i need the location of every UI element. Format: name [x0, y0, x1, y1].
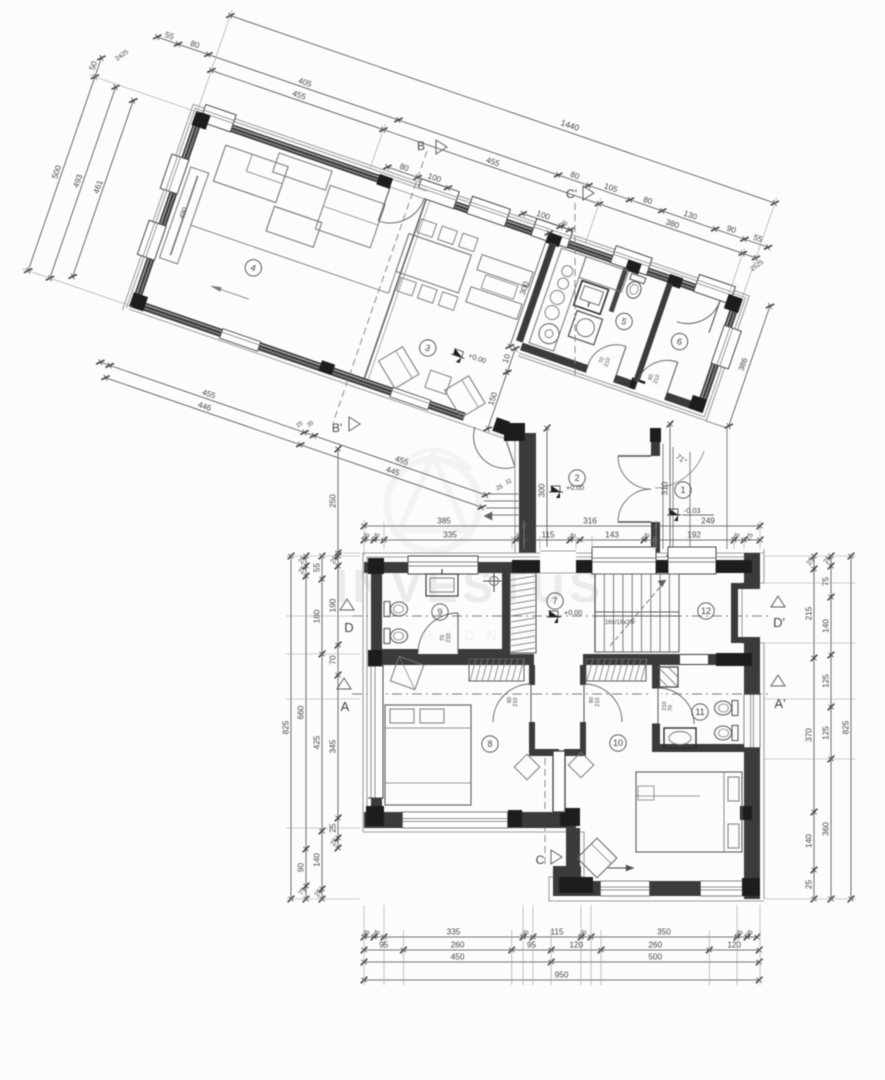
svg-text:90: 90	[297, 863, 306, 873]
svg-text:249: 249	[701, 517, 715, 526]
svg-text:G R A D N J A: G R A D N J A	[400, 627, 540, 643]
svg-text:70: 70	[668, 705, 674, 711]
svg-text:125: 125	[822, 674, 831, 688]
svg-text:B: B	[417, 139, 425, 153]
svg-text:345: 345	[329, 739, 338, 753]
svg-text:950: 950	[555, 971, 569, 980]
svg-text:A': A'	[774, 696, 785, 711]
svg-text:D: D	[344, 620, 353, 635]
svg-text:12: 12	[701, 606, 711, 616]
svg-text:16x/18x30/: 16x/18x30/	[605, 619, 636, 626]
svg-text:825: 825	[282, 720, 291, 734]
svg-text:360: 360	[822, 822, 831, 836]
svg-text:660: 660	[297, 705, 306, 719]
svg-text:125: 125	[822, 726, 831, 740]
svg-text:190: 190	[329, 598, 338, 612]
svg-text:1: 1	[680, 485, 685, 495]
svg-text:140: 140	[805, 834, 814, 848]
svg-text:370: 370	[805, 728, 814, 742]
svg-text:350: 350	[657, 928, 671, 937]
svg-text:10: 10	[613, 738, 623, 748]
svg-text:-0.03: -0.03	[684, 506, 700, 515]
svg-text:A: A	[341, 699, 350, 714]
svg-text:192: 192	[687, 531, 701, 540]
svg-text:9: 9	[437, 607, 442, 617]
svg-text:210: 210	[513, 697, 519, 706]
svg-text:+0.00: +0.00	[564, 608, 582, 617]
svg-text:115: 115	[541, 531, 554, 540]
svg-text:300: 300	[538, 483, 547, 497]
svg-text:120: 120	[727, 941, 741, 950]
svg-text:316: 316	[583, 517, 597, 526]
svg-text:C': C'	[566, 187, 577, 201]
svg-text:C: C	[536, 853, 545, 867]
svg-text:385: 385	[437, 517, 451, 526]
svg-text:55: 55	[313, 563, 322, 573]
svg-text:D': D'	[773, 615, 785, 630]
svg-text:120: 120	[569, 941, 583, 950]
svg-text:825: 825	[842, 720, 851, 734]
svg-text:335: 335	[443, 531, 457, 540]
svg-text:450: 450	[451, 953, 465, 962]
svg-text:210: 210	[595, 697, 601, 706]
svg-text:11: 11	[695, 707, 704, 717]
svg-text:310: 310	[661, 481, 670, 495]
svg-text:250: 250	[329, 494, 338, 508]
svg-text:115: 115	[550, 928, 563, 937]
svg-text:140: 140	[313, 853, 322, 867]
svg-text:425: 425	[313, 735, 322, 749]
svg-text:7: 7	[552, 596, 557, 606]
svg-text:B': B'	[332, 421, 342, 435]
svg-text:2: 2	[574, 473, 579, 483]
svg-text:+0.00: +0.00	[566, 483, 584, 492]
svg-text:210: 210	[446, 633, 452, 642]
svg-text:75: 75	[822, 577, 831, 587]
svg-text:500: 500	[648, 953, 662, 962]
svg-text:8: 8	[487, 739, 492, 749]
svg-text:260: 260	[451, 941, 465, 950]
svg-text:95: 95	[527, 941, 537, 950]
svg-text:140: 140	[822, 619, 831, 633]
svg-text:215: 215	[805, 606, 814, 620]
svg-text:25: 25	[805, 880, 814, 890]
svg-text:143: 143	[605, 531, 619, 540]
svg-text:335: 335	[447, 928, 461, 937]
svg-text:70: 70	[329, 655, 338, 665]
svg-text:260: 260	[648, 941, 662, 950]
